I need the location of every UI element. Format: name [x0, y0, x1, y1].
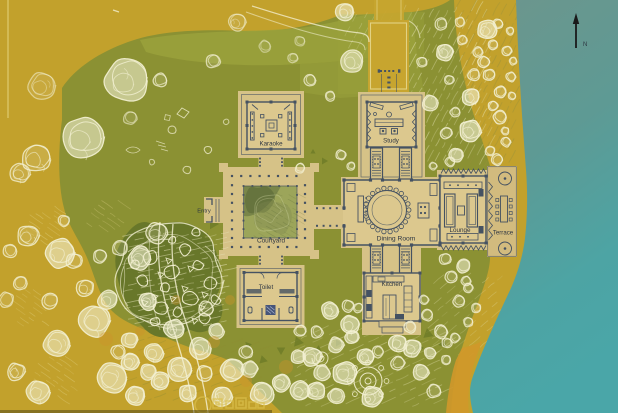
svg-text:Kitchen: Kitchen: [382, 281, 403, 288]
svg-text:Dining Room: Dining Room: [377, 236, 416, 243]
svg-text:N: N: [583, 42, 587, 48]
svg-text:Entry: Entry: [197, 209, 211, 215]
svg-text:Terrace: Terrace: [493, 230, 514, 237]
svg-text:Lounge: Lounge: [449, 227, 471, 234]
svg-text:Courtyard: Courtyard: [257, 238, 286, 245]
svg-text:Karaoke: Karaoke: [259, 141, 283, 148]
svg-text:Study: Study: [383, 138, 400, 145]
svg-text:Toilet: Toilet: [259, 284, 274, 291]
